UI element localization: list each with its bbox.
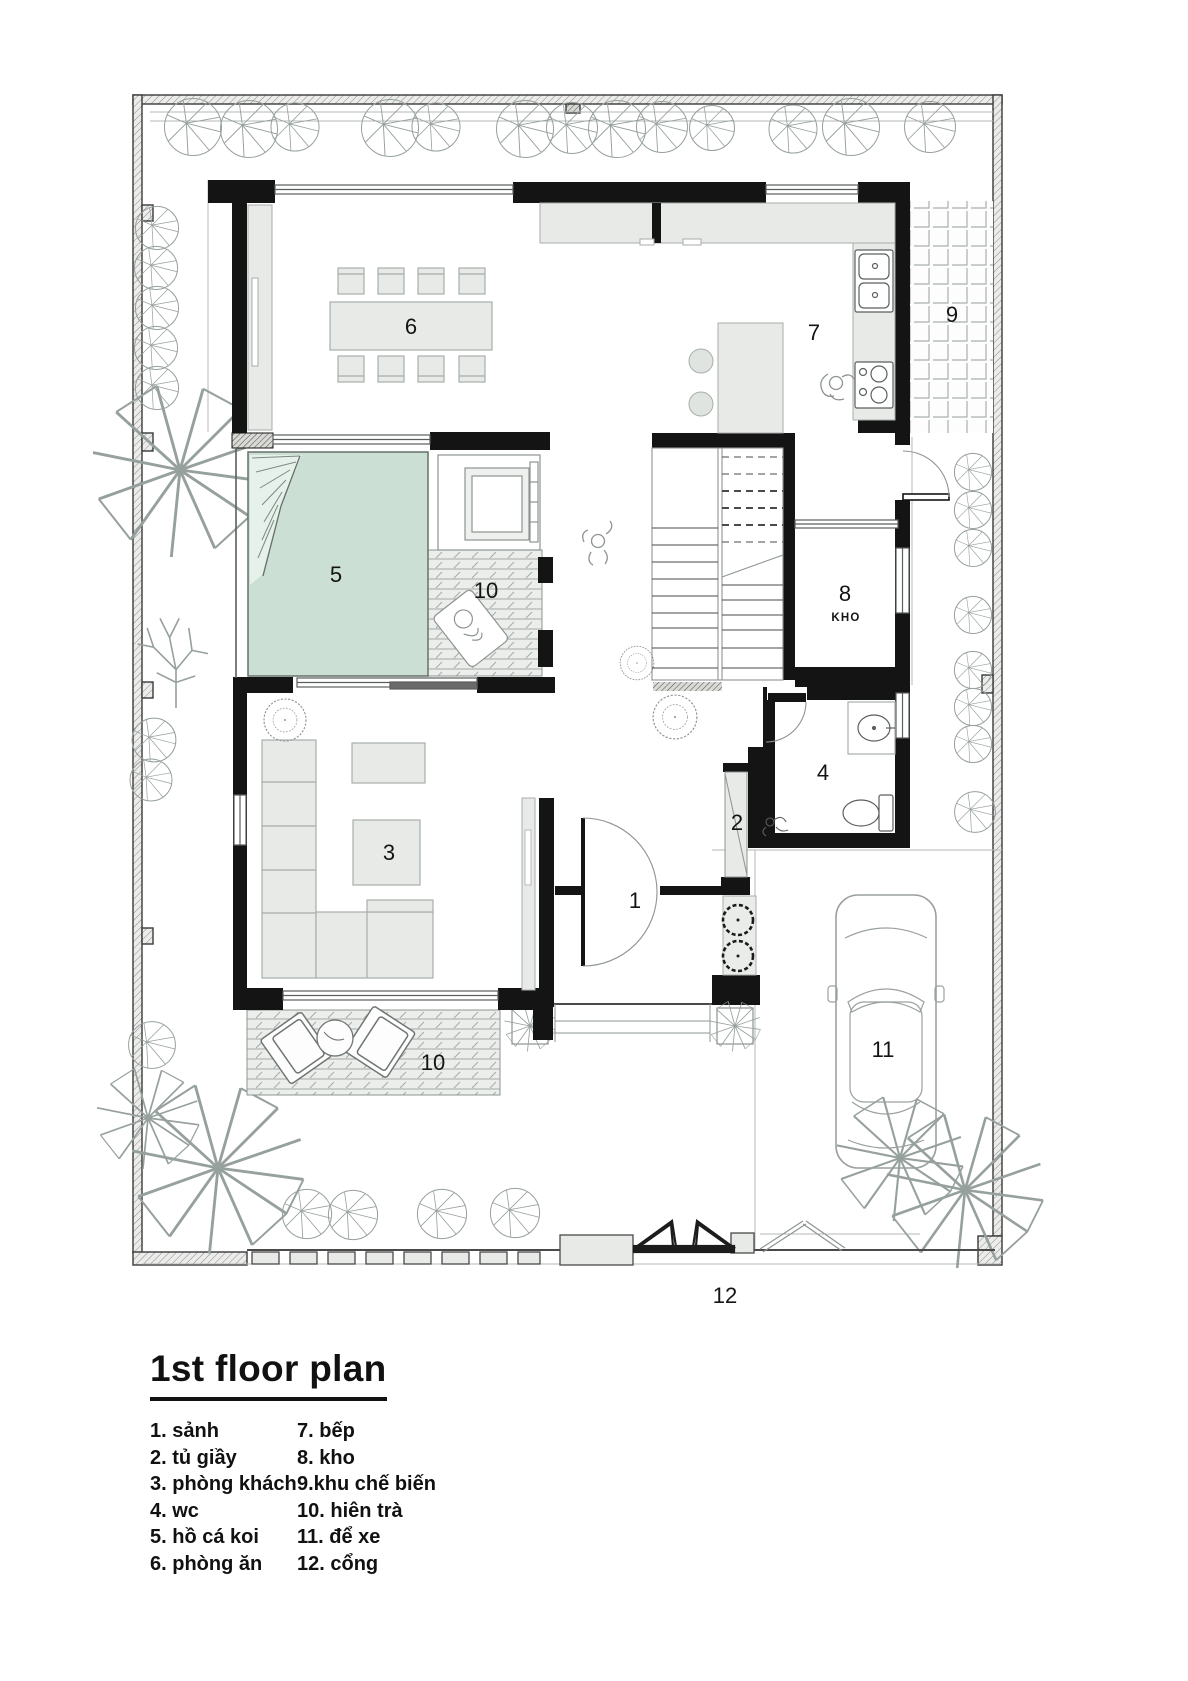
caption-block: 1st floor plan 1. sảnh 2. tủ giầy 3. phò… — [150, 1348, 436, 1578]
wall-hatched-segment — [232, 433, 273, 448]
legend-item: 12. cổng — [297, 1551, 436, 1578]
stair-treads-right — [722, 585, 783, 668]
kitchen-sink — [855, 250, 893, 312]
room-label-deck-lower: 10 — [421, 1050, 445, 1075]
stair-treads-upper — [722, 457, 783, 542]
toilet — [843, 795, 893, 831]
walking-figure — [583, 521, 612, 565]
legend-item: 2. tủ giầy — [150, 1445, 297, 1472]
wc-sink — [848, 702, 895, 754]
room-label-wc: 4 — [817, 760, 829, 785]
stool — [689, 349, 713, 373]
entry-planters — [710, 896, 761, 1052]
street-fence — [247, 1221, 995, 1265]
dining-room — [248, 205, 492, 430]
gate-sidewalk-slab — [560, 1235, 633, 1265]
room-label-hall: 1 — [629, 888, 641, 913]
legend-column-2: 7. bếp 8. kho 9.khu chế biến 10. hiên tr… — [297, 1418, 436, 1578]
room-label-prep: 9 — [946, 302, 958, 327]
room-label-dining: 6 — [405, 314, 417, 339]
kitchen — [540, 203, 895, 433]
legend-item: 6. phòng ăn — [150, 1551, 297, 1578]
cabinet-slot — [252, 278, 258, 366]
side-table — [352, 743, 425, 783]
side-door — [895, 445, 949, 500]
plan-title: 1st floor plan — [150, 1348, 387, 1401]
room-label-storage-name: KHO — [831, 612, 860, 624]
legend: 1. sảnh 2. tủ giầy 3. phòng khách 4. wc … — [150, 1418, 436, 1578]
stove — [855, 362, 893, 408]
room-label-shoe-cabinet: 2 — [731, 810, 743, 835]
legend-item: 10. hiên trà — [297, 1498, 436, 1525]
legend-item: 1. sảnh — [150, 1418, 297, 1445]
gate-leaves — [634, 1221, 734, 1252]
legend-item: 4. wc — [150, 1498, 297, 1525]
pavilion — [438, 455, 540, 550]
room-label-gate: 12 — [713, 1283, 737, 1308]
legend-item: 8. kho — [297, 1445, 436, 1472]
hedge-row — [252, 1252, 540, 1264]
room-label-living: 3 — [383, 840, 395, 865]
legend-item: 7. bếp — [297, 1418, 436, 1445]
floor-plan-page: 1 2 3 4 5 6 7 8 KHO 9 10 10 11 12 1st fl… — [0, 0, 1188, 1681]
car — [828, 895, 944, 1168]
legend-item: 9.khu chế biến — [297, 1471, 436, 1498]
car-gate-open — [760, 1221, 845, 1252]
tea-deck-upper — [428, 550, 542, 676]
deck-table — [317, 1020, 353, 1056]
living-room — [262, 699, 535, 990]
room-label-deck-upper: 10 — [474, 578, 498, 603]
wc-door-leaf — [768, 693, 806, 702]
legend-column-1: 1. sảnh 2. tủ giầy 3. phòng khách 4. wc … — [150, 1418, 297, 1578]
stair-treads-lower — [652, 528, 718, 668]
tv-console — [522, 798, 535, 990]
legend-item: 11. để xe — [297, 1524, 436, 1551]
kitchen-island — [718, 323, 783, 433]
legend-item: 5. hồ cá koi — [150, 1524, 297, 1551]
room-label-kitchen: 7 — [808, 320, 820, 345]
pivot-door-swing — [583, 818, 657, 966]
room-label-storage: 8 — [839, 581, 851, 606]
legend-item: 3. phòng khách — [150, 1471, 297, 1498]
stool — [689, 392, 713, 416]
room-label-parking: 11 — [872, 1037, 895, 1062]
tea-deck-lower — [247, 1001, 556, 1095]
room-label-pond: 5 — [330, 562, 342, 587]
cook-figure — [821, 374, 854, 400]
entry-porch — [553, 1004, 712, 1042]
staircase — [652, 448, 783, 691]
tv-screen — [525, 830, 531, 885]
